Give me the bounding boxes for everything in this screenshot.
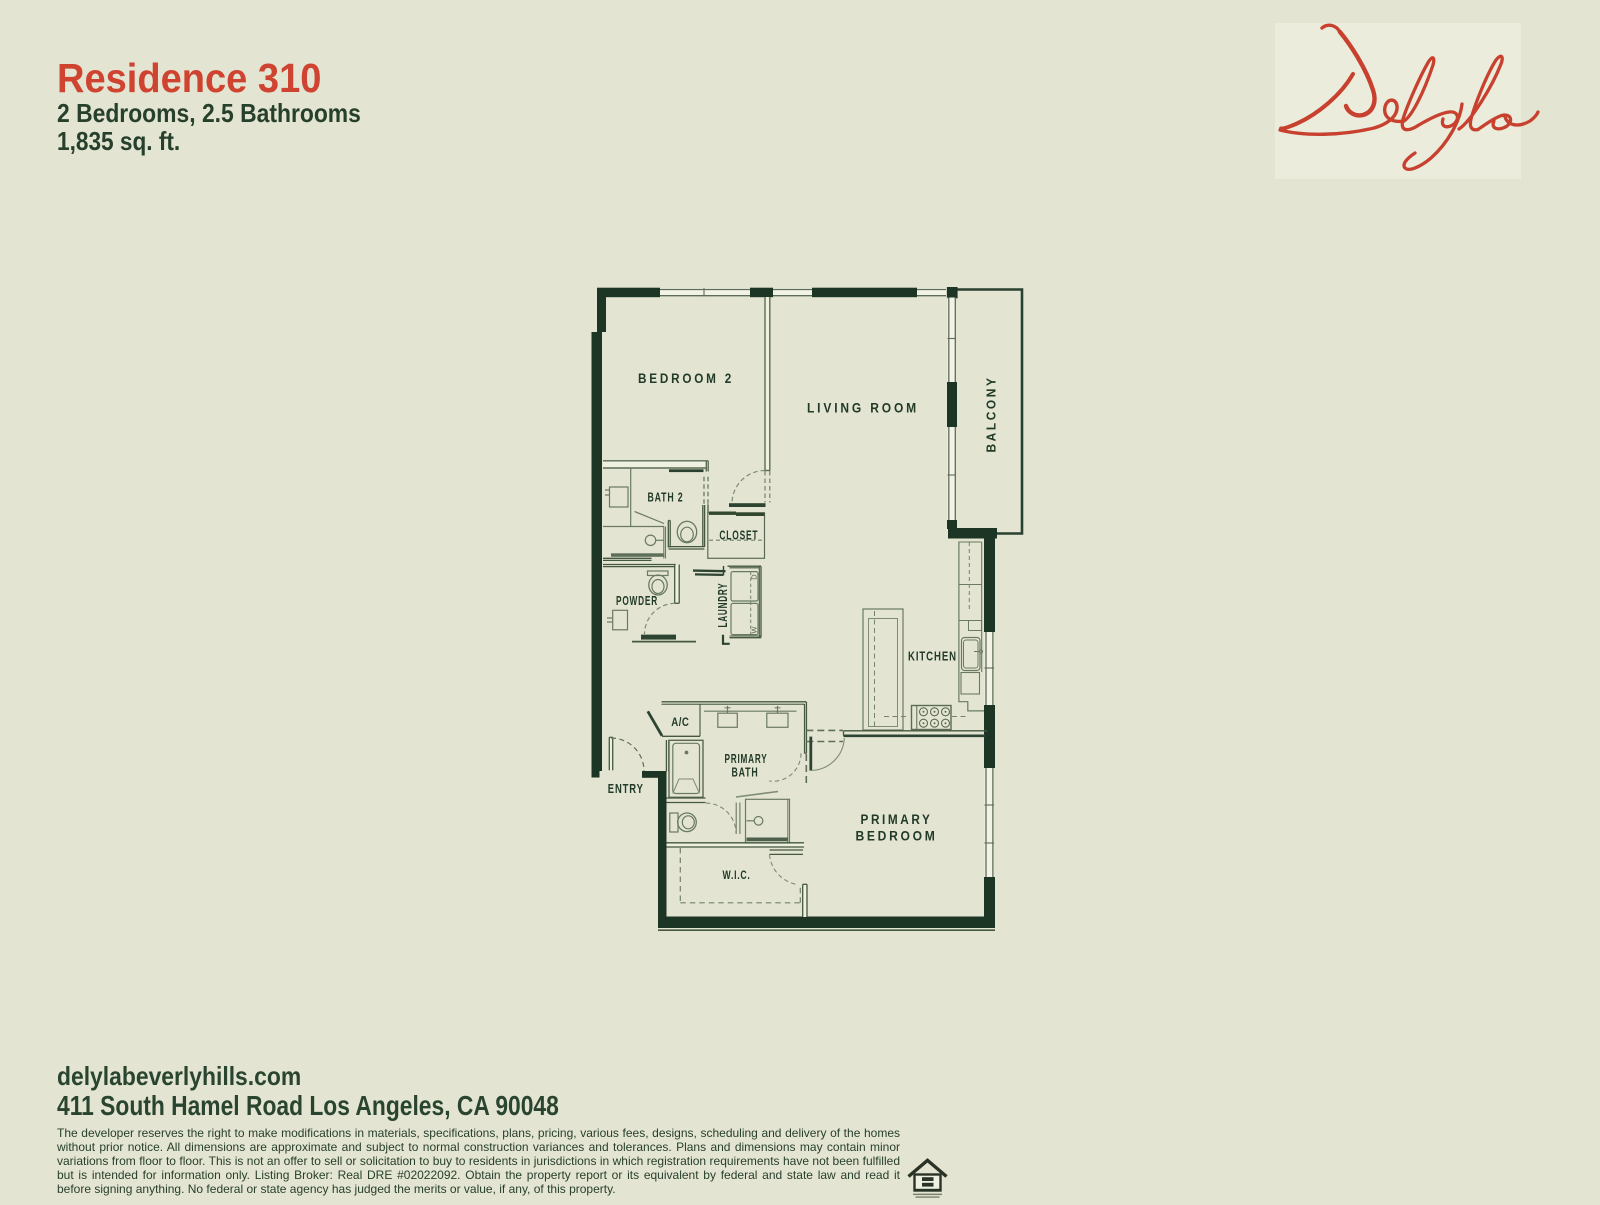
svg-text:A/C: A/C bbox=[671, 717, 689, 729]
svg-text:LIVING ROOM: LIVING ROOM bbox=[807, 400, 919, 415]
svg-text:CLOSET: CLOSET bbox=[719, 529, 758, 543]
svg-text:W.I.C.: W.I.C. bbox=[723, 868, 751, 882]
svg-text:ENTRY: ENTRY bbox=[608, 781, 644, 796]
svg-text:BEDROOM: BEDROOM bbox=[856, 829, 938, 844]
svg-text:BATH: BATH bbox=[732, 766, 759, 780]
svg-text:LAUNDRY: LAUNDRY bbox=[716, 583, 730, 628]
svg-text:BALCONY: BALCONY bbox=[984, 376, 999, 453]
svg-text:BATH 2: BATH 2 bbox=[648, 491, 684, 505]
svg-text:KITCHEN: KITCHEN bbox=[908, 650, 957, 664]
svg-text:PRIMARY: PRIMARY bbox=[725, 752, 768, 766]
svg-text:D: D bbox=[750, 574, 759, 580]
svg-text:PRIMARY: PRIMARY bbox=[861, 812, 933, 827]
svg-text:POWDER: POWDER bbox=[616, 594, 658, 608]
svg-text:BEDROOM 2: BEDROOM 2 bbox=[638, 371, 734, 386]
svg-text:W: W bbox=[750, 626, 759, 634]
